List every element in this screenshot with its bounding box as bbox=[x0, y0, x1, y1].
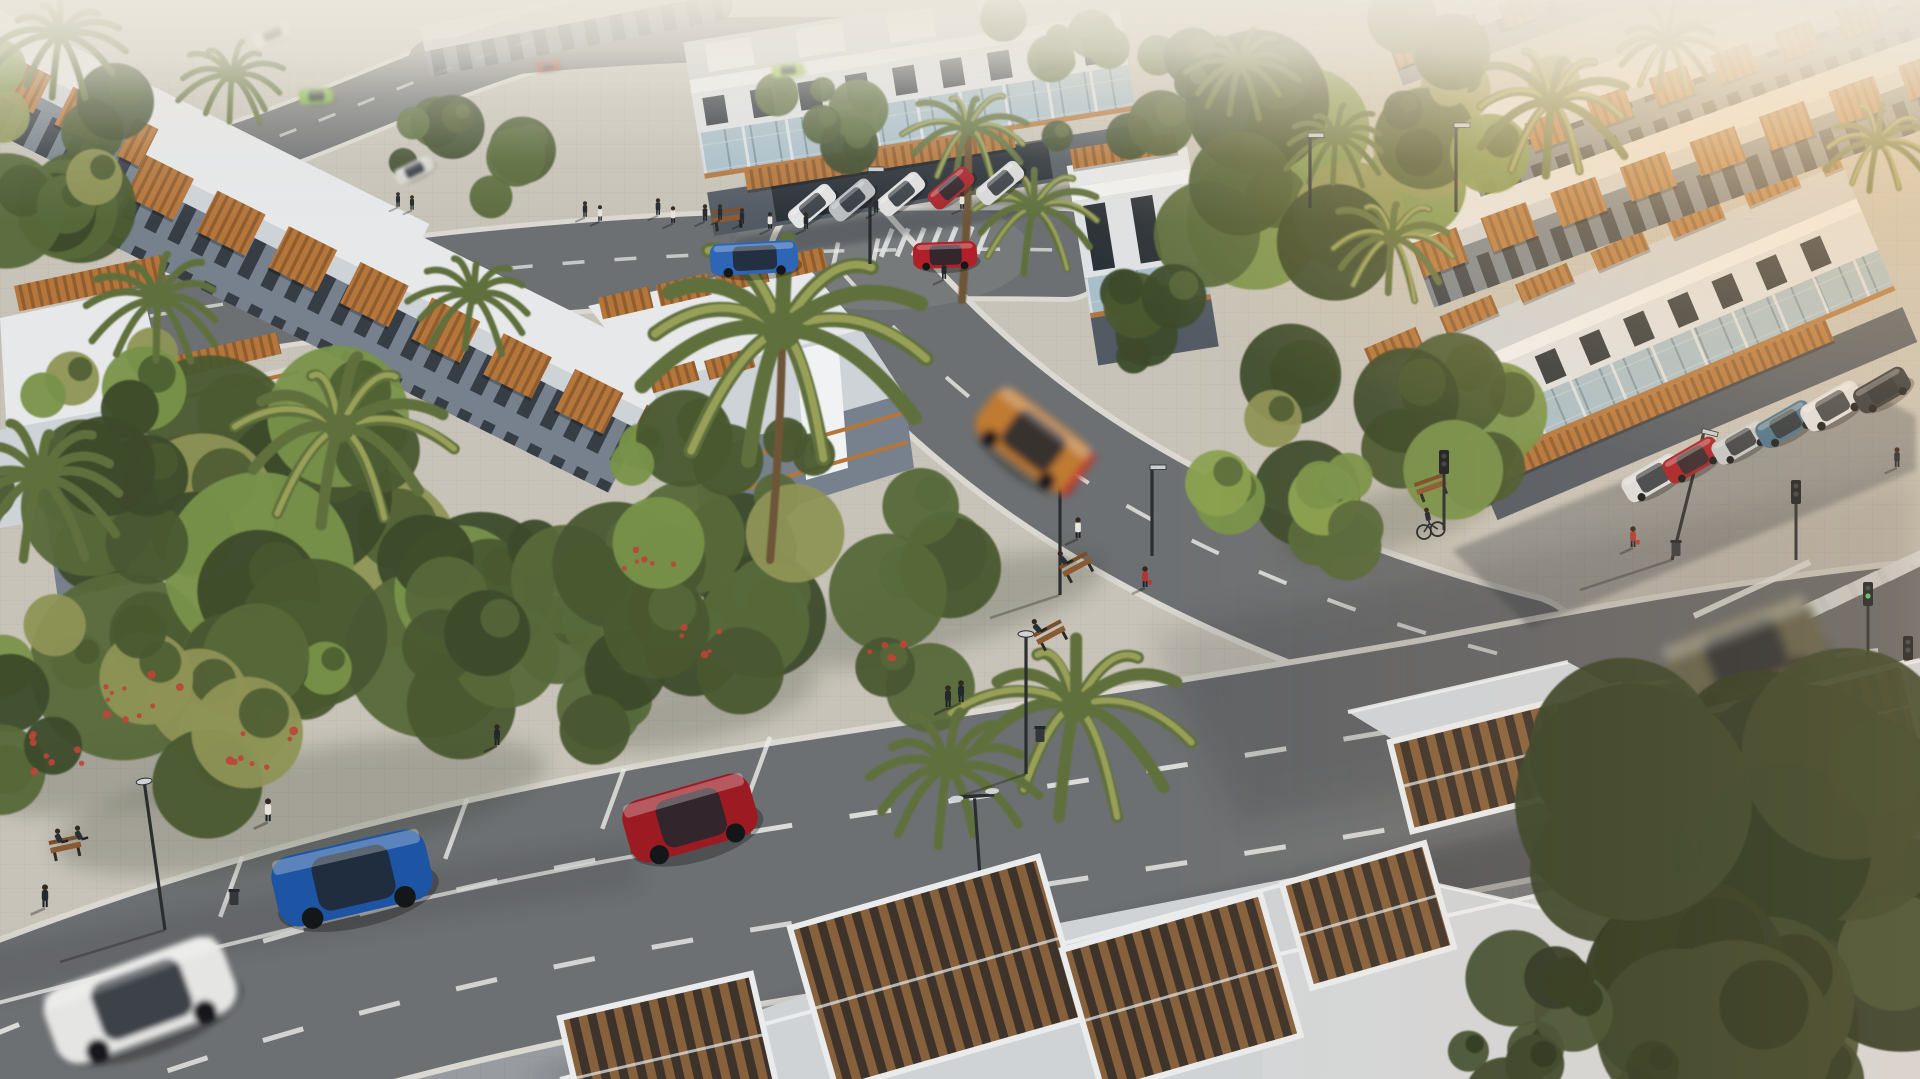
atmospheric-haze-overlay bbox=[0, 0, 1920, 500]
aerial-render-stage bbox=[0, 0, 1920, 1079]
aerial-community-render bbox=[0, 0, 1920, 1079]
